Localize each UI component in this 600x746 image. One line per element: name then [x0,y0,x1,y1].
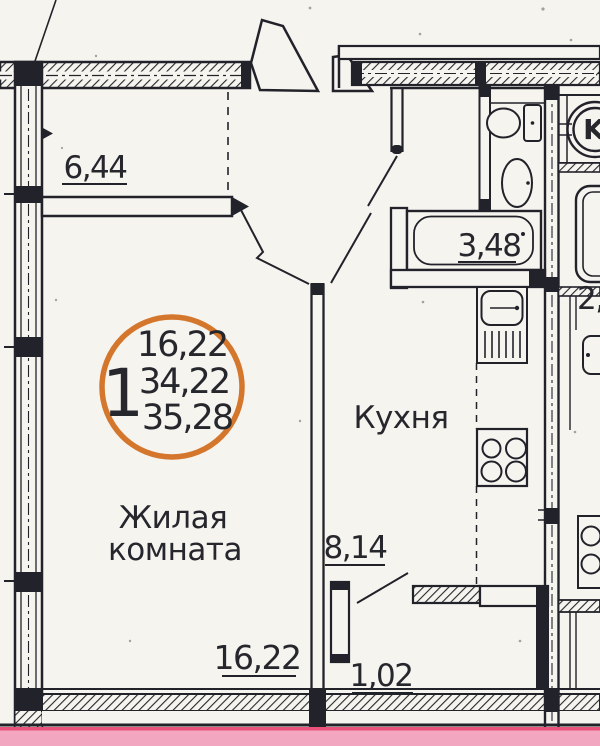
wall-rounded-cap [392,145,403,154]
pink-strip-edge [0,727,600,731]
unit-area-badge: 1 16,22 34,22 35,28 [102,317,242,457]
pink-footer-strip [0,727,600,746]
wall-cap [311,283,325,295]
washbasin-icon [502,159,532,207]
vent-shaft-letter: K [583,113,600,146]
kitchen-label: Кухня [353,400,448,436]
balcony-dimension: 6,44 [63,150,126,186]
bath-dimension: 3,48 [457,228,520,264]
floor-plan-page: 1 16,22 34,22 35,28 Жилая комната Кухня … [0,0,600,746]
neighbor-sink-icon [583,336,600,374]
wall-cap [475,62,486,85]
kitchen-dimension: 8,14 [323,530,386,566]
neighbor-sink-dot [586,353,590,357]
wall-hatch-band [559,163,600,172]
wall-band-outer [339,46,600,59]
sink-drain-dot [515,306,519,310]
wall-cap [479,199,492,210]
wall-cap [529,270,545,287]
top-right-exterior-wall [339,45,600,88]
wall-cap [331,654,349,662]
wall-cap [352,62,362,85]
kitchen-hall-wall [413,586,480,603]
living-room-label-line2: комната [108,532,242,568]
badge-unit-number: 1 [102,355,142,432]
wall-band [42,197,232,216]
neighbor-dimension-partial: 2, [577,281,600,317]
wall-cap [479,85,492,97]
neighbor-tub-icon [576,186,600,282]
basin-tap-dot [526,181,530,185]
living-dimension: 16,22 [214,638,301,677]
bottom-exterior-wall [0,689,600,725]
wall-cap [331,582,349,590]
hall-east-wall [536,586,549,690]
hall-dimension: 1,02 [349,658,412,694]
wall-end-cap [241,62,250,88]
living-room-label-line1: Жилая [119,500,228,536]
toilet-flush-dot [531,121,535,125]
badge-area-3: 35,28 [142,398,232,438]
wall-hatch-band [559,600,600,612]
badge-area-2: 34,22 [139,362,229,402]
stove-icon [477,429,527,486]
toilet-bowl [487,109,520,138]
floor-plan-canvas: 1 16,22 34,22 35,28 Жилая комната Кухня … [0,0,600,746]
hall-column [331,582,349,662]
tub-drain-dot [521,232,525,236]
tub-bottom-wall [391,270,545,287]
badge-area-1: 16,22 [137,325,227,365]
